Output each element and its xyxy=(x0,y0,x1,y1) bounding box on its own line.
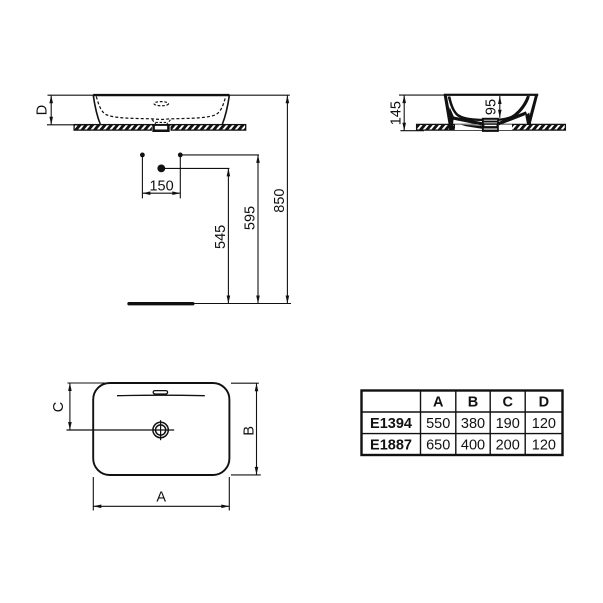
svg-text:A: A xyxy=(433,394,444,410)
svg-text:D: D xyxy=(35,105,51,115)
svg-text:E1887: E1887 xyxy=(370,437,412,453)
svg-text:E1394: E1394 xyxy=(370,416,412,432)
svg-text:B: B xyxy=(468,394,478,410)
svg-text:C: C xyxy=(51,402,67,412)
svg-text:200: 200 xyxy=(496,437,520,453)
svg-text:380: 380 xyxy=(461,416,485,432)
svg-text:A: A xyxy=(156,489,166,505)
svg-text:C: C xyxy=(502,394,513,410)
svg-text:550: 550 xyxy=(426,416,450,432)
svg-text:95: 95 xyxy=(483,99,499,115)
svg-text:650: 650 xyxy=(426,437,450,453)
svg-text:120: 120 xyxy=(532,437,556,453)
svg-text:150: 150 xyxy=(149,178,173,194)
svg-text:850: 850 xyxy=(272,188,288,212)
svg-text:595: 595 xyxy=(242,206,258,230)
svg-text:400: 400 xyxy=(461,437,485,453)
svg-text:545: 545 xyxy=(213,225,229,249)
svg-text:145: 145 xyxy=(389,101,405,125)
svg-text:190: 190 xyxy=(496,416,520,432)
svg-text:B: B xyxy=(241,426,257,436)
svg-text:D: D xyxy=(539,394,549,410)
svg-text:120: 120 xyxy=(532,416,556,432)
